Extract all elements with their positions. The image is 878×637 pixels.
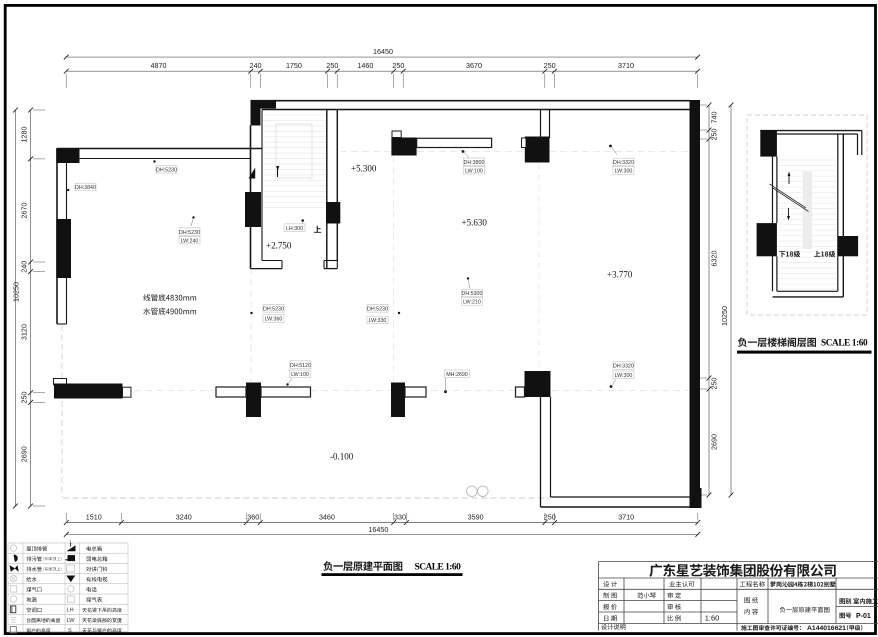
svg-text:3710: 3710 xyxy=(618,61,634,70)
svg-text:MH:2690: MH:2690 xyxy=(446,372,468,378)
svg-text:3240: 3240 xyxy=(176,513,192,522)
svg-text:LW:240: LW:240 xyxy=(181,238,199,244)
svg-text:LW:360: LW:360 xyxy=(265,317,283,323)
svg-text:+2.750: +2.750 xyxy=(266,241,292,251)
svg-text:250: 250 xyxy=(544,61,556,70)
svg-text:1280: 1280 xyxy=(20,126,29,142)
svg-text:DH:5300: DH:5300 xyxy=(462,291,483,297)
svg-text:10250: 10250 xyxy=(12,282,21,302)
svg-text:DH:5230: DH:5230 xyxy=(367,307,388,313)
svg-text:3670: 3670 xyxy=(466,61,482,70)
svg-text:2690: 2690 xyxy=(710,434,719,450)
svg-text:LW:100: LW:100 xyxy=(291,372,309,378)
svg-text:LW: LW xyxy=(67,618,76,624)
svg-text:1460: 1460 xyxy=(357,61,373,70)
svg-text:DH:5120: DH:5120 xyxy=(290,363,311,369)
svg-text:3590: 3590 xyxy=(468,513,484,522)
svg-text:330: 330 xyxy=(394,513,406,522)
svg-text:DH:3320: DH:3320 xyxy=(613,364,634,370)
svg-text:DH:5230: DH:5230 xyxy=(179,230,200,236)
svg-text:740: 740 xyxy=(710,112,719,124)
svg-text:240: 240 xyxy=(250,61,262,70)
svg-text:LW:210: LW:210 xyxy=(463,300,481,306)
svg-text:DH:5230: DH:5230 xyxy=(156,168,177,174)
svg-text:6320: 6320 xyxy=(710,251,719,267)
svg-text:DH:3840: DH:3840 xyxy=(75,185,96,191)
svg-text:A144016621: A144016621 xyxy=(807,625,846,632)
svg-text:-0.100: -0.100 xyxy=(330,452,354,462)
svg-text:250: 250 xyxy=(544,513,556,522)
svg-text:2690: 2690 xyxy=(20,446,29,462)
svg-text:16450: 16450 xyxy=(368,525,388,534)
svg-text:LW:300: LW:300 xyxy=(615,373,633,379)
svg-text:4870: 4870 xyxy=(151,61,167,70)
svg-text:10250: 10250 xyxy=(720,306,729,326)
svg-text:3120: 3120 xyxy=(20,324,29,340)
svg-text:1:60: 1:60 xyxy=(705,614,720,623)
svg-text:250: 250 xyxy=(710,378,719,390)
svg-text:1750: 1750 xyxy=(286,61,302,70)
svg-text:LW:100: LW:100 xyxy=(465,168,483,174)
svg-text:LW:330: LW:330 xyxy=(369,318,387,324)
svg-text:LH:300: LH:300 xyxy=(286,226,303,232)
svg-text:250: 250 xyxy=(710,129,719,141)
svg-text:+5.630: +5.630 xyxy=(462,218,488,228)
svg-text:DH:3320: DH:3320 xyxy=(613,160,634,166)
svg-text:LW:300: LW:300 xyxy=(615,169,633,175)
svg-text:LH: LH xyxy=(67,608,74,614)
svg-text:250: 250 xyxy=(326,61,338,70)
svg-text:3460: 3460 xyxy=(319,513,335,522)
svg-text:2670: 2670 xyxy=(20,202,29,218)
svg-text:3710: 3710 xyxy=(618,513,634,522)
svg-text:360: 360 xyxy=(247,513,259,522)
svg-text:1510: 1510 xyxy=(86,513,102,522)
svg-text:S: S xyxy=(68,628,72,634)
svg-text:240: 240 xyxy=(20,261,29,273)
svg-text:P-01: P-01 xyxy=(856,613,871,620)
svg-text:16450: 16450 xyxy=(373,47,393,56)
svg-text:SCALE 1:60: SCALE 1:60 xyxy=(821,338,868,348)
svg-text:+5.300: +5.300 xyxy=(351,164,377,174)
svg-text:DH:3800: DH:3800 xyxy=(464,160,485,166)
svg-text:250: 250 xyxy=(392,61,404,70)
svg-text:+3.770: +3.770 xyxy=(607,270,633,280)
svg-text:SCALE 1:60: SCALE 1:60 xyxy=(415,563,462,573)
svg-text:DH:5230: DH:5230 xyxy=(263,307,284,313)
svg-text:250: 250 xyxy=(20,392,29,404)
